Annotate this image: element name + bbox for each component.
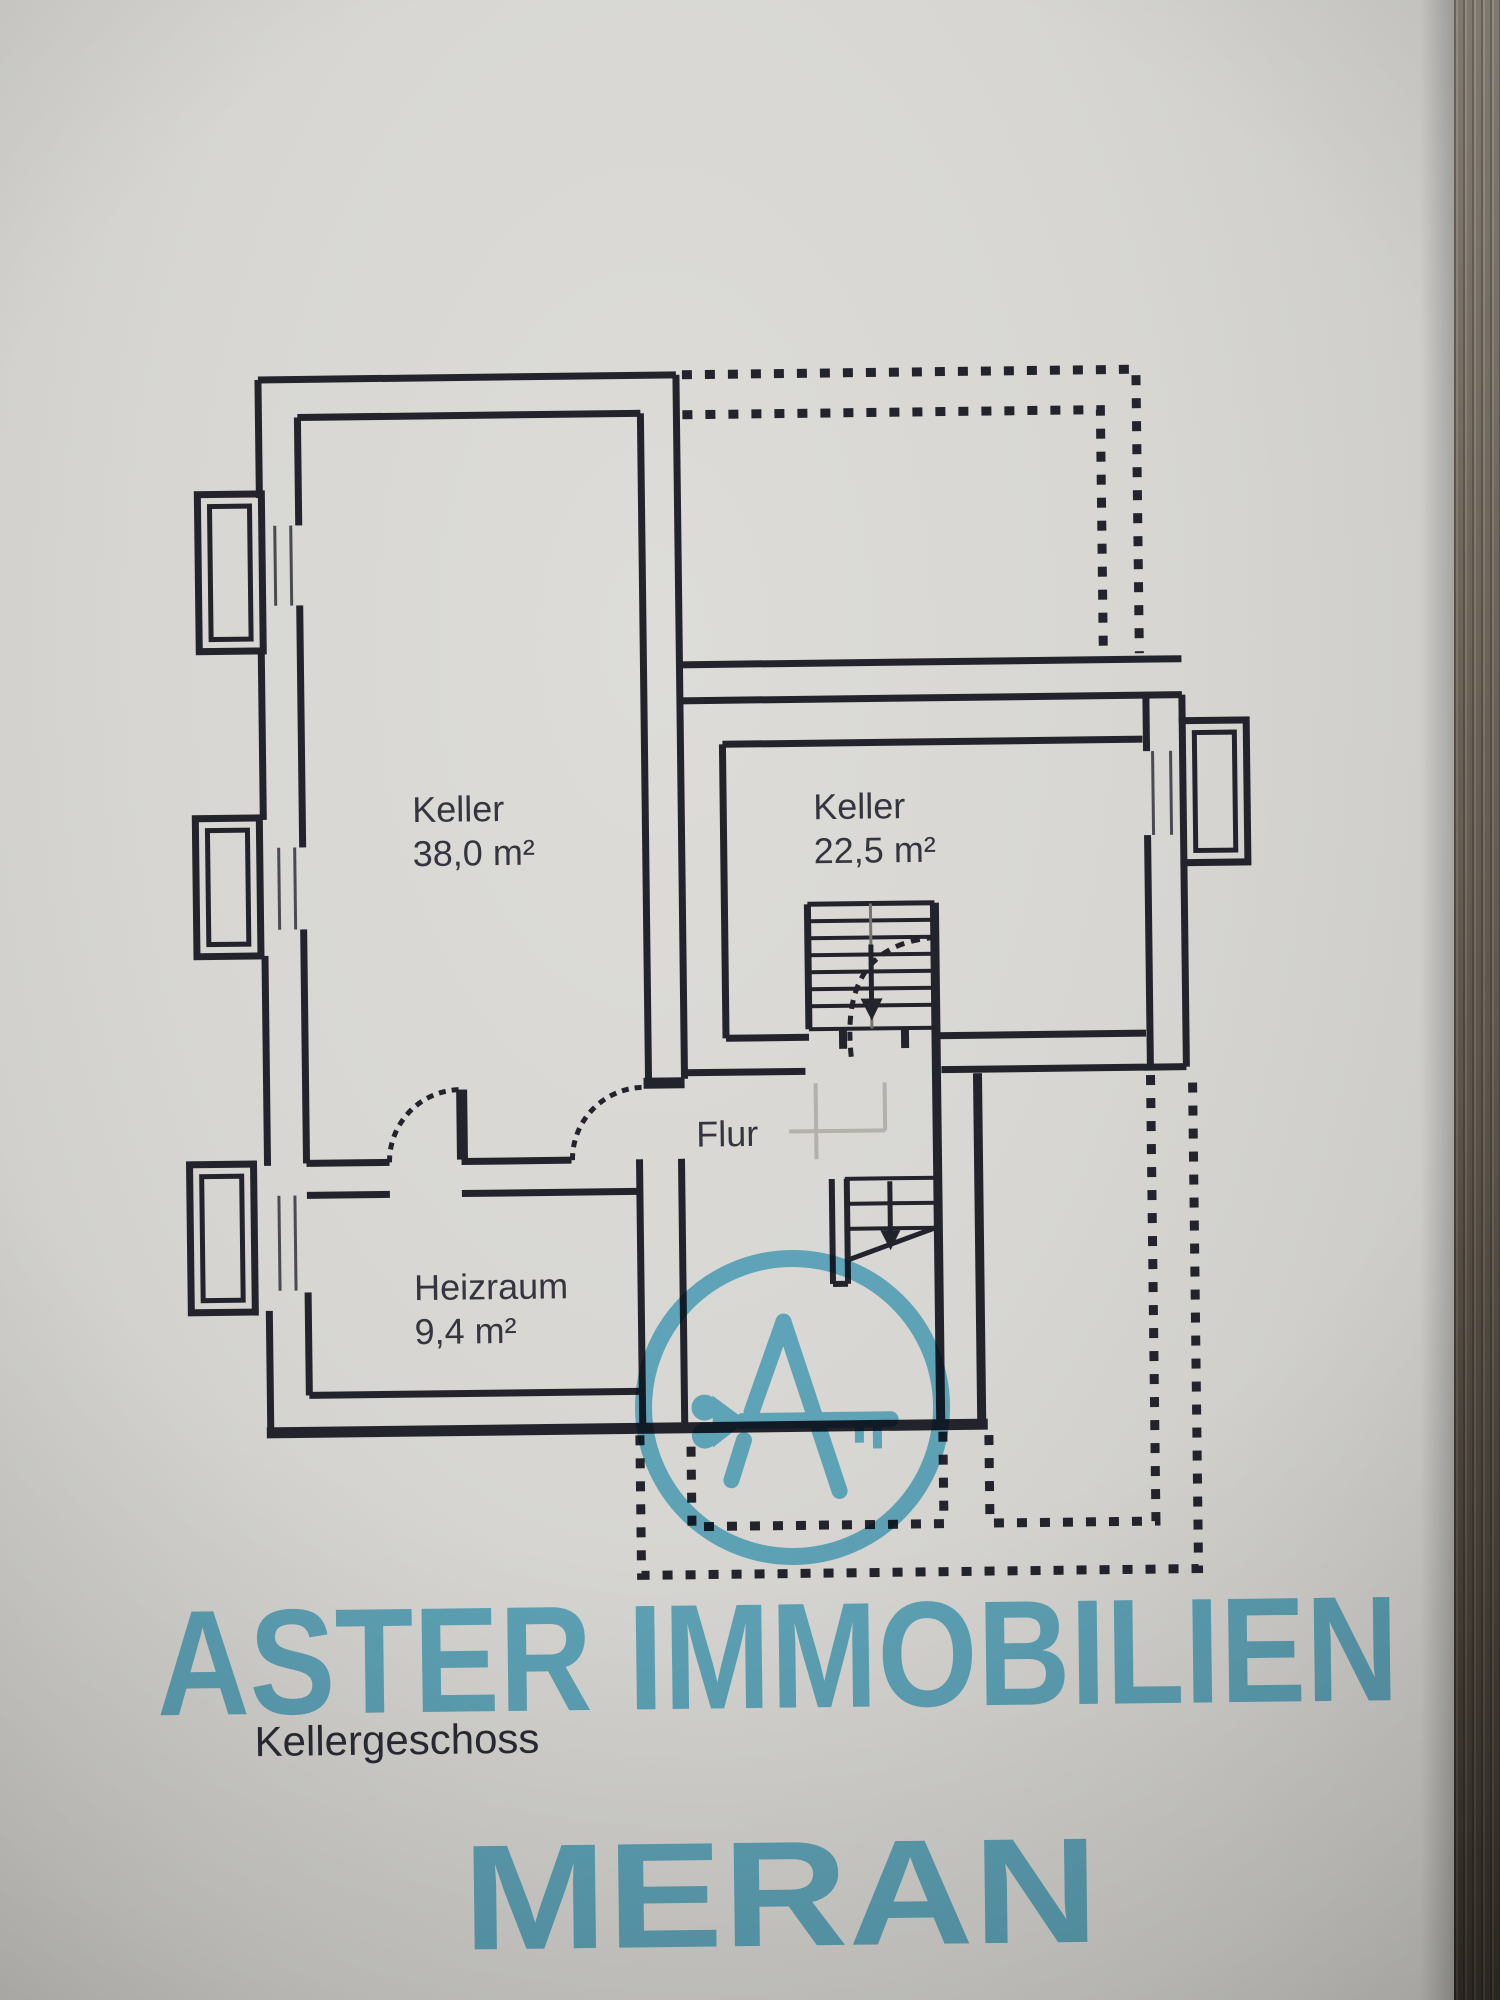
watermark: ASTER IMMOBILIEN MERAN	[152, 1251, 1403, 1985]
stair-down-arrow-shaft	[871, 945, 872, 1001]
watermark-line1: ASTER IMMOBILIEN	[156, 1564, 1400, 1747]
room-area-keller-right: 22,5 m²	[813, 829, 936, 871]
stair-down-arrowhead	[861, 998, 883, 1020]
logo-a-left-leg-upper	[750, 1322, 784, 1412]
room-area-keller-left: 38,0 m²	[412, 832, 535, 874]
doors	[389, 1083, 686, 1163]
company-name: ASTER IMMOBILIEN MERAN	[156, 1564, 1403, 1985]
photo: Keller 38,0 m² Keller 22,5 m² Flur Heizr…	[0, 0, 1500, 2000]
stair-down-arrow-shaft	[890, 1181, 891, 1232]
room-name-keller-right: Keller	[813, 785, 906, 827]
window-well-right	[1182, 720, 1248, 863]
paper-edge-shadow	[1420, 0, 1454, 2000]
room-area-heizraum: 9,4 m²	[414, 1310, 517, 1352]
watermark-line2: MERAN	[461, 1806, 1099, 1982]
room-name-flur: Flur	[696, 1113, 759, 1155]
windows	[181, 482, 1253, 1313]
room-name-keller-left: Keller	[412, 788, 505, 830]
window-well-bottom-left	[190, 1164, 256, 1313]
door-heizraum	[389, 1090, 463, 1163]
bleed-through-lines	[789, 1082, 886, 1159]
logo-key-shaft	[743, 1419, 891, 1421]
screenshot-root: { "photo": { "description": "scan-photo …	[0, 0, 1500, 2000]
stairs-upper	[807, 903, 936, 1058]
logo-a-right-leg	[783, 1321, 839, 1492]
window-well-top-left	[197, 494, 263, 652]
window-well-mid-left	[195, 818, 261, 957]
floor-plan-drawing: Keller 38,0 m² Keller 22,5 m² Flur Heizr…	[0, 0, 1500, 2000]
room-name-heizraum: Heizraum	[414, 1265, 569, 1308]
wood-table-edge	[1454, 0, 1500, 2000]
logo-a-left-leg-lower	[731, 1440, 744, 1480]
thick-walls	[260, 902, 987, 1433]
door-flur-keller	[572, 1083, 686, 1160]
